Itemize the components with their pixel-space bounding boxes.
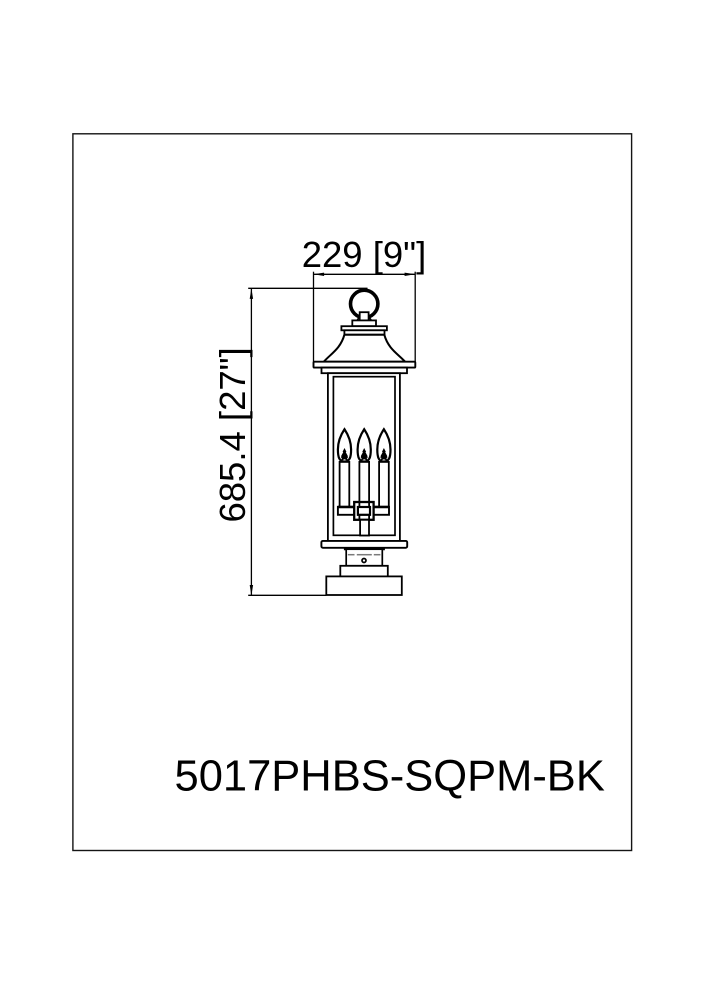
svg-text:685.4 [27"]: 685.4 [27"] (212, 347, 253, 522)
svg-text:5017PHBS-SQPM-BK: 5017PHBS-SQPM-BK (175, 753, 605, 801)
svg-text:229 [9"]: 229 [9"] (302, 234, 427, 275)
